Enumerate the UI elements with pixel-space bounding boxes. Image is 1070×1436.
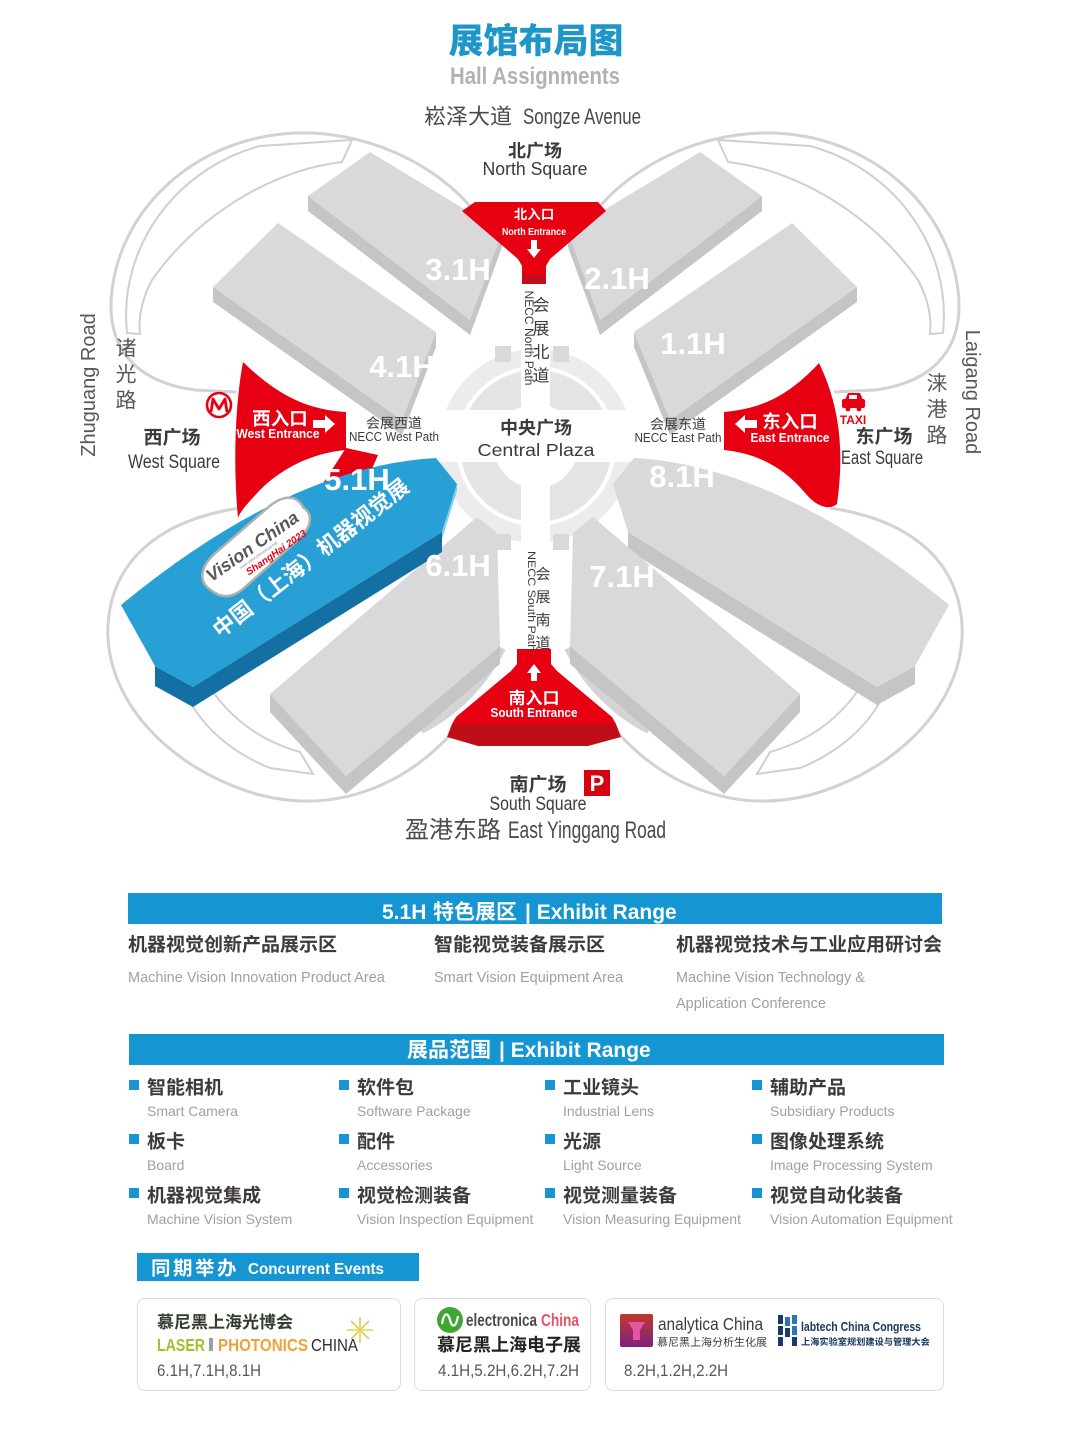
svg-text:LASER: LASER (157, 1335, 205, 1355)
svg-text:Subsidiary Products: Subsidiary Products (770, 1103, 895, 1119)
svg-text:6.1H,7.1H,8.1H: 6.1H,7.1H,8.1H (157, 1361, 261, 1380)
svg-text:| Exhibit Range: | Exhibit Range (525, 901, 677, 924)
svg-text:China: China (541, 1310, 579, 1330)
svg-text:Industrial Lens: Industrial Lens (563, 1103, 654, 1119)
svg-text:Machine Vision Innovation Prod: Machine Vision Innovation Product Area (128, 970, 386, 986)
svg-text:| Exhibit Range: | Exhibit Range (499, 1039, 651, 1062)
svg-text:Vision Measuring Equipment: Vision Measuring Equipment (563, 1211, 741, 1227)
svg-text:8.2H,1.2H,2.2H: 8.2H,1.2H,2.2H (624, 1361, 728, 1380)
svg-text:PHOTONICS: PHOTONICS (218, 1335, 308, 1355)
svg-text:Vision Inspection Equipment: Vision Inspection Equipment (357, 1211, 534, 1227)
svg-text:Machine Vision Technology &: Machine Vision Technology & (676, 970, 865, 986)
svg-text:analytica China: analytica China (658, 1314, 763, 1334)
svg-text:Application Conference: Application Conference (676, 996, 826, 1012)
svg-text:Vision Automation Equipment: Vision Automation Equipment (770, 1211, 953, 1227)
svg-text:Board: Board (147, 1157, 184, 1173)
svg-text:labtech China Congress: labtech China Congress (801, 1319, 921, 1334)
svg-text:4.1H,5.2H,6.2H,7.2H: 4.1H,5.2H,6.2H,7.2H (438, 1361, 579, 1380)
svg-text:Smart Camera: Smart Camera (147, 1103, 238, 1119)
svg-text:Accessories: Accessories (357, 1157, 432, 1173)
svg-text:electronica: electronica (466, 1310, 537, 1330)
svg-text:5.1H: 5.1H (382, 901, 426, 924)
svg-text:Image Processing System: Image Processing System (770, 1157, 933, 1173)
svg-text:Concurrent Events: Concurrent Events (248, 1261, 384, 1278)
svg-text:Machine Vision System: Machine Vision System (147, 1211, 292, 1227)
svg-text:Smart Vision Equipment Area: Smart Vision Equipment Area (434, 970, 624, 986)
svg-text:Software Package: Software Package (357, 1103, 471, 1119)
svg-text:Light Source: Light Source (563, 1157, 642, 1173)
